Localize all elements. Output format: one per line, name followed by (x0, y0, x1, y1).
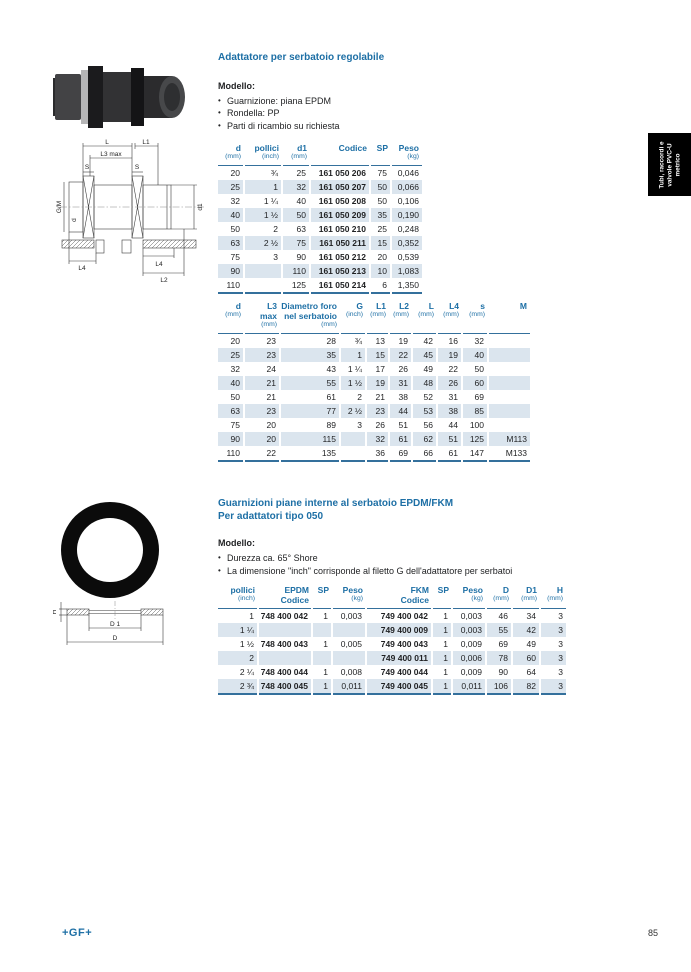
table-row: 20¾25161 050 206750,046 (218, 165, 422, 180)
table-cell: 0,005 (332, 637, 366, 651)
table-cell: 0,011 (452, 679, 486, 694)
dimension-label: D 1 (110, 621, 121, 628)
table-cell: 25 (370, 222, 391, 236)
table-cell: 22 (389, 348, 412, 362)
table-cell: 49 (412, 362, 437, 376)
table-cell: 40 (282, 194, 310, 208)
column-header: L(mm) (412, 301, 437, 333)
table-cell: 40 (218, 376, 244, 390)
tank-adapter-dimension-drawing: L L1 L3 max S S G/M d d1 L4 L4 L2 (56, 136, 208, 299)
table-row: 1102213536696661147M133 (218, 446, 530, 461)
table-cell: 69 (486, 637, 512, 651)
table-cell: 1 (432, 637, 452, 651)
table-cell (244, 278, 282, 293)
table-cell: 19 (389, 333, 412, 348)
table-cell: 0,009 (452, 637, 486, 651)
table-cell: 161 050 211 (310, 236, 370, 250)
dimension-label: H (53, 609, 58, 614)
table-cell: 25 (218, 348, 244, 362)
table-cell: 1 (218, 609, 258, 624)
column-header: D(mm) (486, 585, 512, 609)
column-header: d1(mm) (282, 143, 310, 165)
table-cell: 161 050 207 (310, 180, 370, 194)
table-cell: 1 ½ (218, 637, 258, 651)
table-cell: 0,352 (391, 236, 422, 250)
bullet-icon: • (218, 107, 227, 120)
table-cell: 69 (389, 446, 412, 461)
column-header: L4(mm) (437, 301, 462, 333)
section1: Adattatore per serbatoio regolabile Mode… (218, 52, 628, 132)
table-header-row: d(mm)pollici(inch)d1(mm)CodiceSPPeso(kg) (218, 143, 422, 165)
table-cell: 55 (280, 376, 340, 390)
table-cell: 43 (280, 362, 340, 376)
table-cell: 24 (244, 362, 280, 376)
table-cell (488, 418, 530, 432)
bullet-icon: • (218, 565, 227, 578)
column-header: pollici(inch) (244, 143, 282, 165)
table-row: 110125161 050 21461,350 (218, 278, 422, 293)
table-cell: 50 (370, 180, 391, 194)
dimension-label: L1 (142, 139, 150, 146)
table-cell: 62 (412, 432, 437, 446)
table-cell (488, 404, 530, 418)
bullet-text: Guarnizione: piana EPDM (227, 95, 331, 108)
table-cell: 20 (244, 432, 280, 446)
gasket-order-table: pollici(inch)EPDMCodiceSPPeso(kg)FKMCodi… (218, 585, 566, 695)
table-cell: 1 ¼ (340, 362, 366, 376)
table-cell (488, 333, 530, 348)
table-cell: 161 050 210 (310, 222, 370, 236)
table-row: 1 ¼749 400 00910,00355423 (218, 623, 566, 637)
table-cell: 3 (340, 418, 366, 432)
section2-title-line2: Per adattatori tipo 050 (218, 511, 658, 524)
table-cell: 50 (462, 362, 488, 376)
table-cell: 100 (462, 418, 488, 432)
table-cell: 110 (218, 446, 244, 461)
table-cell (488, 362, 530, 376)
gf-brand-logo: +GF+ (62, 927, 92, 939)
spec-table: pollici(inch)EPDMCodiceSPPeso(kg)FKMCodi… (218, 585, 566, 695)
table-cell: 0,003 (452, 623, 486, 637)
table-cell: 32 (366, 432, 389, 446)
table-cell: 110 (282, 264, 310, 278)
column-header: D1(mm) (512, 585, 540, 609)
table-cell: 161 050 212 (310, 250, 370, 264)
table-cell: 748 400 042 (258, 609, 312, 624)
dimension-label: d (71, 218, 78, 222)
table-cell: 75 (282, 236, 310, 250)
bullet-icon: • (218, 552, 227, 565)
table-row: 321 ¼40161 050 208500,106 (218, 194, 422, 208)
column-header: SP (370, 143, 391, 165)
table-cell: 147 (462, 446, 488, 461)
table-cell: ¾ (340, 333, 366, 348)
adapter-order-table: d(mm)pollici(inch)d1(mm)CodiceSPPeso(kg)… (218, 143, 422, 294)
table-row: 50216122138523169 (218, 390, 530, 404)
table-cell (340, 446, 366, 461)
table-cell: 90 (486, 665, 512, 679)
table-cell: 61 (437, 446, 462, 461)
table-cell: 50 (218, 390, 244, 404)
side-tab-line: Tubi, raccordi e (658, 133, 666, 196)
section1-bullet-list: •Guarnizione: piana EPDM •Rondella: PP •… (218, 95, 628, 133)
table-row: 401 ½50161 050 209350,190 (218, 208, 422, 222)
table-cell: 44 (437, 418, 462, 432)
section2-model-label: Modello: (218, 538, 658, 548)
table-cell: 42 (412, 333, 437, 348)
table-cell: 60 (512, 651, 540, 665)
tank-adapter-photo-image (53, 56, 188, 138)
table-cell: 161 050 214 (310, 278, 370, 293)
table-cell: 63 (282, 222, 310, 236)
column-header: SP (432, 585, 452, 609)
column-header: G(inch) (340, 301, 366, 333)
table-cell: 85 (462, 404, 488, 418)
table-cell: 1 (340, 348, 366, 362)
table-cell: 90 (282, 250, 310, 264)
gasket-photo-image (57, 500, 163, 600)
table-cell: 31 (437, 390, 462, 404)
tank-adapter-drawing-image: L L1 L3 max S S G/M d d1 L4 L4 L2 (56, 136, 208, 294)
table-row: 50263161 050 210250,248 (218, 222, 422, 236)
table-cell: 748 400 044 (258, 665, 312, 679)
table-cell: 23 (366, 404, 389, 418)
bullet-text: Parti di ricambio su richiesta (227, 120, 340, 133)
table-cell: 0,066 (391, 180, 422, 194)
table-cell: 66 (412, 446, 437, 461)
table-cell: 749 400 042 (366, 609, 432, 624)
table-cell: 1 (312, 679, 332, 694)
bullet-item: •Parti di ricambio su richiesta (218, 120, 628, 133)
spec-table: d(mm)pollici(inch)d1(mm)CodiceSPPeso(kg)… (218, 143, 422, 294)
table-cell: 1 (432, 609, 452, 624)
bullet-text: La dimensione "inch" corrisponde al file… (227, 565, 512, 578)
table-cell: 42 (512, 623, 540, 637)
table-cell: 22 (437, 362, 462, 376)
table-cell: 1 ¼ (244, 194, 282, 208)
dimension-label: S (85, 164, 90, 171)
column-header: L2(mm) (389, 301, 412, 333)
table-cell: 161 050 209 (310, 208, 370, 222)
table-row: 2 ¼748 400 04410,008749 400 04410,009906… (218, 665, 566, 679)
table-cell: 3 (540, 609, 566, 624)
table-cell: 20 (370, 250, 391, 264)
table-row: 2749 400 01110,00678603 (218, 651, 566, 665)
table-cell: 53 (412, 404, 437, 418)
table-cell: 50 (218, 222, 244, 236)
table-cell: 161 050 208 (310, 194, 370, 208)
table-cell: 32 (218, 362, 244, 376)
table-cell: 48 (412, 376, 437, 390)
table-cell: 749 400 043 (366, 637, 432, 651)
column-header: L3 max(mm) (244, 301, 280, 333)
table-cell: 38 (437, 404, 462, 418)
table-cell: 748 400 043 (258, 637, 312, 651)
spec-table: d(mm)L3 max(mm)Diametro foro nel serbato… (218, 301, 530, 462)
table-cell: 38 (389, 390, 412, 404)
table-cell: 61 (389, 432, 412, 446)
section2-bullet-list: •Durezza ca. 65° Shore •La dimensione "i… (218, 552, 658, 577)
dimension-label: D (113, 635, 118, 642)
table-cell: 46 (486, 609, 512, 624)
table-row: 202328¾1319421632 (218, 333, 530, 348)
table-cell: 6 (370, 278, 391, 293)
table-cell (258, 623, 312, 637)
table-cell: 3 (244, 250, 282, 264)
table-cell: 35 (280, 348, 340, 362)
table-cell: 10 (370, 264, 391, 278)
table-cell: 3 (540, 623, 566, 637)
chapter-side-tab-text: Tubi, raccordi e valvole PVC-U metrico (648, 133, 691, 196)
table-cell: 40 (462, 348, 488, 362)
table-cell: 161 050 213 (310, 264, 370, 278)
table-cell: 31 (389, 376, 412, 390)
table-row: 1 ½748 400 04310,005749 400 04310,009694… (218, 637, 566, 651)
table-cell: M113 (488, 432, 530, 446)
table-cell: 50 (282, 208, 310, 222)
table-cell: 0,011 (332, 679, 366, 694)
section1-title: Adattatore per serbatoio regolabile (218, 52, 628, 65)
bullet-text: Durezza ca. 65° Shore (227, 552, 318, 565)
table-cell: 0,008 (332, 665, 366, 679)
adapter-dimensions-table: d(mm)L3 max(mm)Diametro foro nel serbato… (218, 301, 530, 462)
table-cell: 26 (437, 376, 462, 390)
table-cell: 2 ½ (340, 404, 366, 418)
bullet-icon: • (218, 95, 227, 108)
table-cell: 75 (218, 418, 244, 432)
table-cell: 1 (432, 679, 452, 694)
table-cell: 40 (218, 208, 244, 222)
table-cell: 1 (432, 665, 452, 679)
table-cell: 13 (366, 333, 389, 348)
table-cell: 1 (432, 651, 452, 665)
table-cell: 1,350 (391, 278, 422, 293)
bullet-text: Rondella: PP (227, 107, 280, 120)
table-cell: 749 400 044 (366, 665, 432, 679)
table-cell (488, 348, 530, 362)
table-row: 25132161 050 207500,066 (218, 180, 422, 194)
gasket-dimension-drawing: H D 1 D (53, 597, 178, 660)
table-row: 1748 400 04210,003749 400 04210,00346343 (218, 609, 566, 624)
table-cell: 2 (218, 651, 258, 665)
table-cell (312, 651, 332, 665)
table-cell: 0,046 (391, 165, 422, 180)
dimension-label: L2 (160, 277, 168, 284)
dimension-label: S (135, 164, 140, 171)
table-cell: 1 (312, 637, 332, 651)
table-cell: 19 (437, 348, 462, 362)
dimension-label: L4 (78, 265, 86, 272)
dimension-label: d1 (197, 203, 204, 211)
table-cell: 1 ½ (340, 376, 366, 390)
table-cell: 1 (312, 665, 332, 679)
table-row: 902011532616251125M113 (218, 432, 530, 446)
table-cell: 25 (282, 165, 310, 180)
table-cell: 125 (282, 278, 310, 293)
table-cell: 0,248 (391, 222, 422, 236)
table-row: 6323772 ½2344533885 (218, 404, 530, 418)
table-cell: 22 (244, 446, 280, 461)
table-cell: 90 (218, 264, 244, 278)
table-cell: 748 400 045 (258, 679, 312, 694)
table-cell: 2 ½ (244, 236, 282, 250)
table-cell: 51 (389, 418, 412, 432)
table-cell: 1 ¼ (218, 623, 258, 637)
table-cell: 21 (244, 390, 280, 404)
table-cell: 2 (244, 222, 282, 236)
column-header: d(mm) (218, 301, 244, 333)
column-header: FKMCodice (366, 585, 432, 609)
table-cell: 34 (512, 609, 540, 624)
table-cell: 64 (512, 665, 540, 679)
table-cell (312, 623, 332, 637)
table-cell: 69 (462, 390, 488, 404)
column-header: M (488, 301, 530, 333)
table-cell: 749 400 045 (366, 679, 432, 694)
table-row: 2 ¾748 400 04510,011749 400 04510,011106… (218, 679, 566, 694)
table-cell: 28 (280, 333, 340, 348)
bullet-icon: • (218, 120, 227, 133)
table-row: 25233511522451940 (218, 348, 530, 362)
table-cell: 161 050 206 (310, 165, 370, 180)
table-cell: 16 (437, 333, 462, 348)
table-cell: 21 (244, 376, 280, 390)
table-cell: 50 (370, 194, 391, 208)
table-cell: ¾ (244, 165, 282, 180)
table-cell: 75 (370, 165, 391, 180)
table-cell: 56 (412, 418, 437, 432)
table-cell: 82 (512, 679, 540, 694)
table-cell: 49 (512, 637, 540, 651)
side-tab-line: valvole PVC-U (666, 133, 674, 196)
table-cell: 75 (218, 250, 244, 264)
table-cell: 2 ¾ (218, 679, 258, 694)
section2-title-line1: Guarnizioni piane interne al serbatoio E… (218, 498, 658, 511)
table-cell: 1 (432, 623, 452, 637)
table-cell: 3 (540, 679, 566, 694)
table-cell: 20 (218, 165, 244, 180)
column-header: SP (312, 585, 332, 609)
table-cell: 749 400 011 (366, 651, 432, 665)
table-cell: 52 (412, 390, 437, 404)
table-row: 3224431 ¼1726492250 (218, 362, 530, 376)
bullet-item: •La dimensione "inch" corrisponde al fil… (218, 565, 658, 578)
table-cell (258, 651, 312, 665)
table-cell: 23 (244, 333, 280, 348)
column-header: d(mm) (218, 143, 244, 165)
table-cell: 78 (486, 651, 512, 665)
table-row: 4021551 ½1931482660 (218, 376, 530, 390)
table-cell: 20 (244, 418, 280, 432)
table-cell: 90 (218, 432, 244, 446)
table-cell: 749 400 009 (366, 623, 432, 637)
table-cell: 115 (280, 432, 340, 446)
table-cell: 0,106 (391, 194, 422, 208)
table-cell: 0,539 (391, 250, 422, 264)
table-cell: 15 (366, 348, 389, 362)
table-header-row: d(mm)L3 max(mm)Diametro foro nel serbato… (218, 301, 530, 333)
section2: Guarnizioni piane interne al serbatoio E… (218, 498, 658, 577)
column-header: pollici(inch) (218, 585, 258, 609)
bullet-item: •Guarnizione: piana EPDM (218, 95, 628, 108)
table-cell: 89 (280, 418, 340, 432)
table-header-row: pollici(inch)EPDMCodiceSPPeso(kg)FKMCodi… (218, 585, 566, 609)
table-cell: M133 (488, 446, 530, 461)
table-cell: 0,009 (452, 665, 486, 679)
table-row: 75390161 050 212200,539 (218, 250, 422, 264)
table-cell: 15 (370, 236, 391, 250)
table-cell: 61 (280, 390, 340, 404)
dimension-label: G/M (56, 201, 63, 213)
table-cell: 0,003 (452, 609, 486, 624)
table-cell: 23 (244, 348, 280, 362)
table-cell: 0,006 (452, 651, 486, 665)
table-cell: 44 (389, 404, 412, 418)
column-header: Peso(kg) (391, 143, 422, 165)
gasket-photo (57, 500, 163, 605)
bullet-item: •Durezza ca. 65° Shore (218, 552, 658, 565)
table-cell: 60 (462, 376, 488, 390)
table-cell: 20 (218, 333, 244, 348)
table-cell: 23 (244, 404, 280, 418)
table-cell: 1,083 (391, 264, 422, 278)
table-cell (332, 623, 366, 637)
dimension-label: L (105, 139, 109, 146)
table-cell: 21 (366, 390, 389, 404)
table-cell: 45 (412, 348, 437, 362)
table-cell: 3 (540, 651, 566, 665)
column-header: Peso(kg) (332, 585, 366, 609)
page-number: 85 (648, 928, 658, 938)
table-cell: 2 ¼ (218, 665, 258, 679)
bullet-item: •Rondella: PP (218, 107, 628, 120)
table-cell: 26 (389, 362, 412, 376)
tank-adapter-photo (53, 56, 188, 143)
table-cell: 32 (462, 333, 488, 348)
table-cell: 25 (218, 180, 244, 194)
table-cell: 125 (462, 432, 488, 446)
table-cell (488, 390, 530, 404)
column-header: Peso(kg) (452, 585, 486, 609)
table-cell: 110 (218, 278, 244, 293)
table-cell: 32 (218, 194, 244, 208)
dimension-label: L3 max (100, 151, 122, 158)
column-header: Diametro foro nel serbatoio(mm) (280, 301, 340, 333)
table-cell: 26 (366, 418, 389, 432)
table-cell: 17 (366, 362, 389, 376)
table-cell: 36 (366, 446, 389, 461)
table-cell: 19 (366, 376, 389, 390)
column-header: EPDMCodice (258, 585, 312, 609)
table-cell: 63 (218, 404, 244, 418)
column-header: L1(mm) (366, 301, 389, 333)
section1-model-label: Modello: (218, 81, 628, 91)
table-cell: 1 (244, 180, 282, 194)
table-cell (332, 651, 366, 665)
table-cell: 32 (282, 180, 310, 194)
table-cell: 3 (540, 665, 566, 679)
table-cell (244, 264, 282, 278)
column-header: Codice (310, 143, 370, 165)
table-cell: 106 (486, 679, 512, 694)
table-cell (488, 376, 530, 390)
table-cell: 0,003 (332, 609, 366, 624)
gasket-drawing-image: H D 1 D (53, 597, 178, 655)
table-cell: 3 (540, 637, 566, 651)
table-cell (340, 432, 366, 446)
table-cell: 0,190 (391, 208, 422, 222)
table-row: 752089326515644100 (218, 418, 530, 432)
